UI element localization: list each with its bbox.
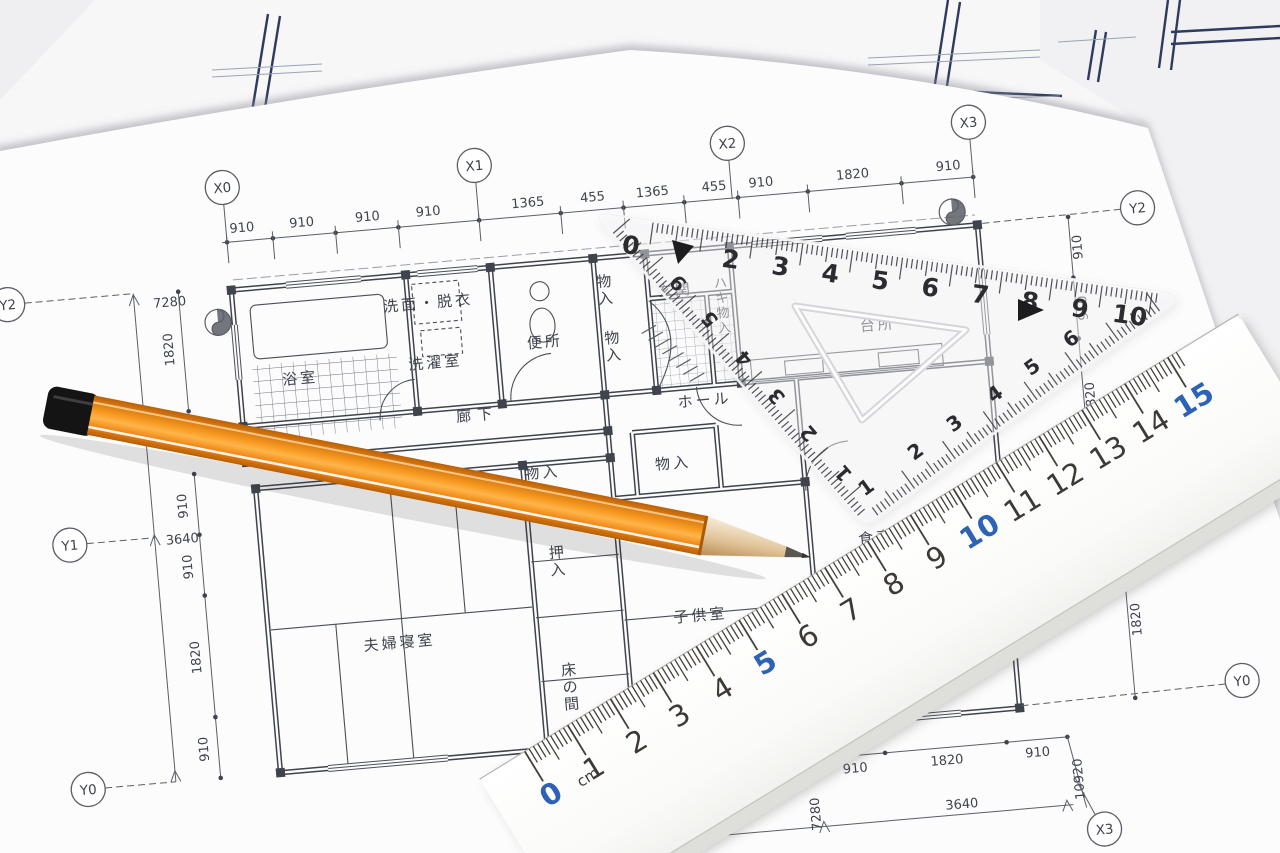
grid-bubble-label: Y1 bbox=[60, 537, 79, 554]
grid-bubble-label: X0 bbox=[213, 180, 232, 197]
dim-label-left: 910 bbox=[196, 736, 213, 762]
wall-post bbox=[485, 263, 495, 273]
scene-canvas: 9109109109101365455136545591018209107280… bbox=[0, 0, 1280, 853]
bath-tiles bbox=[252, 353, 403, 440]
dim-label-left-outer: 7280 bbox=[153, 294, 187, 312]
dim-label-left: 1820 bbox=[161, 333, 179, 367]
wall-post bbox=[226, 285, 236, 295]
dim-label-top: 910 bbox=[354, 209, 380, 226]
dim-label-left: 1820 bbox=[188, 640, 206, 674]
dim-label-bottom: 910 bbox=[1025, 745, 1051, 762]
grid-bubble-label: X1 bbox=[465, 158, 484, 175]
grid-bubble-label: Y2 bbox=[0, 297, 17, 314]
set-square-number: 10 bbox=[1111, 299, 1149, 333]
grid-bubble-label: Y0 bbox=[78, 782, 97, 799]
grid-bubble-label: Y2 bbox=[1128, 200, 1147, 217]
room-label: 物入 bbox=[524, 462, 561, 483]
grid-bubble-label: X3 bbox=[1095, 821, 1114, 838]
room-label: 物入 bbox=[604, 328, 622, 364]
dim-label-top: 910 bbox=[229, 220, 255, 237]
dim-label-top: 1820 bbox=[835, 166, 869, 184]
dim-label-top: 1365 bbox=[511, 195, 545, 213]
wall-post bbox=[600, 390, 610, 400]
dim-label-top: 455 bbox=[580, 189, 606, 206]
grid-bubble-label: X2 bbox=[718, 136, 737, 153]
dim-label-top: 910 bbox=[289, 215, 315, 232]
wall-post bbox=[497, 399, 507, 409]
wall-post bbox=[605, 453, 615, 463]
dim-label-bottom-total: 3640 bbox=[945, 796, 979, 814]
room-label: 物入 bbox=[596, 272, 614, 308]
wall-post bbox=[276, 768, 286, 778]
dim-label-right: 1820 bbox=[1128, 602, 1146, 636]
wall-post bbox=[401, 270, 411, 280]
dim-label-top: 910 bbox=[935, 158, 961, 175]
dim-label-left: 910 bbox=[175, 493, 192, 519]
room-label: 浴室 bbox=[281, 368, 318, 389]
dim-label-top: 455 bbox=[701, 179, 727, 196]
wall-post bbox=[1015, 703, 1025, 713]
room-label: 便所 bbox=[526, 331, 563, 352]
dim-label-left: 910 bbox=[180, 554, 197, 580]
grid-bubble-label: X3 bbox=[959, 114, 978, 131]
dim-label-left-outer: 3640 bbox=[165, 531, 199, 549]
wall-post bbox=[588, 254, 598, 264]
room-label: 廊下 bbox=[455, 404, 498, 426]
wall-post bbox=[800, 477, 810, 487]
dim-label-run: 7280 bbox=[808, 797, 826, 831]
wall-post bbox=[413, 406, 423, 416]
grid-bubble-label: Y0 bbox=[1232, 673, 1251, 690]
room-label: 物入 bbox=[654, 453, 691, 474]
wall-post bbox=[973, 220, 983, 230]
dim-label-right: 910 bbox=[1070, 234, 1087, 260]
dim-label-top: 910 bbox=[748, 174, 774, 191]
photo-of-blueprint-and-tools: 9109109109101365455136545591018209107280… bbox=[0, 0, 1280, 853]
wall-post bbox=[652, 386, 662, 396]
dim-label-bottom: 1820 bbox=[930, 752, 964, 770]
wall-post bbox=[603, 426, 613, 436]
dim-label-top: 910 bbox=[415, 204, 441, 221]
dim-label-top: 1365 bbox=[635, 184, 669, 202]
